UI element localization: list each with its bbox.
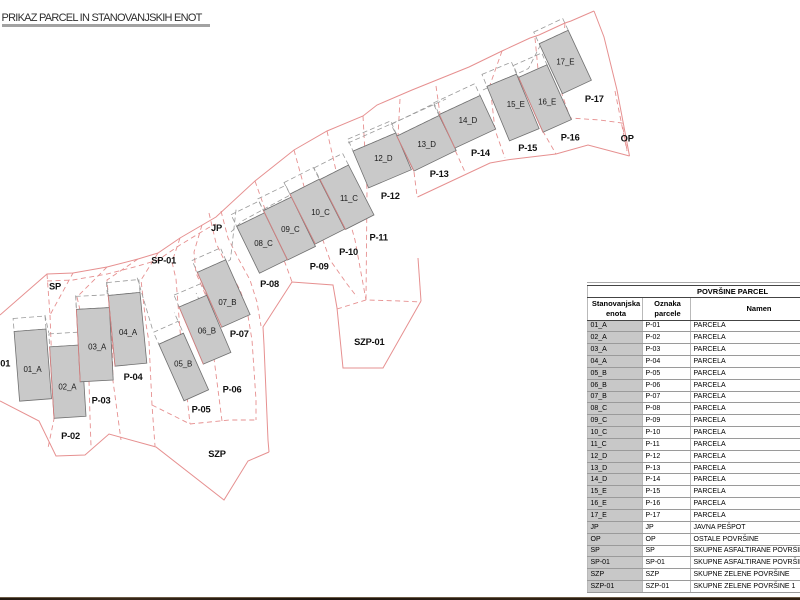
svg-text:P-17: P-17: [585, 94, 604, 104]
svg-text:P-08: P-08: [260, 279, 279, 289]
svg-text:05_B: 05_B: [174, 359, 192, 368]
svg-text:SP-01: SP-01: [151, 255, 176, 265]
svg-text:P-03: P-03: [92, 395, 111, 405]
svg-text:P-10: P-10: [339, 247, 358, 257]
svg-text:03_A: 03_A: [88, 343, 107, 352]
svg-text:P-09: P-09: [310, 262, 329, 272]
svg-text:P-15: P-15: [518, 143, 537, 153]
svg-text:17_E: 17_E: [556, 57, 574, 66]
svg-text:04_A: 04_A: [119, 328, 138, 337]
svg-text:SP: SP: [49, 282, 61, 292]
svg-text:15_E: 15_E: [507, 100, 525, 109]
svg-text:P-12: P-12: [381, 191, 400, 201]
svg-text:P-06: P-06: [223, 384, 242, 394]
svg-text:02_A: 02_A: [58, 382, 77, 391]
svg-text:JP: JP: [211, 223, 222, 233]
svg-text:13_D: 13_D: [417, 140, 436, 149]
svg-text:P-07: P-07: [230, 329, 249, 339]
svg-text:11_C: 11_C: [340, 194, 358, 203]
svg-text:16_E: 16_E: [538, 98, 556, 107]
svg-text:06_B: 06_B: [198, 326, 216, 335]
svg-text:P-04: P-04: [124, 372, 144, 382]
svg-text:SZP: SZP: [208, 449, 225, 459]
svg-text:09_C: 09_C: [281, 225, 300, 234]
svg-text:SZP-01: SZP-01: [354, 337, 384, 347]
svg-text:10_C: 10_C: [311, 208, 330, 217]
svg-text:OP: OP: [621, 133, 634, 143]
svg-text:P-05: P-05: [192, 405, 211, 415]
svg-text:01_A: 01_A: [23, 365, 42, 374]
svg-text:P-13: P-13: [430, 169, 449, 179]
svg-text:08_C: 08_C: [254, 239, 273, 248]
svg-text:12_D: 12_D: [374, 154, 393, 163]
svg-text:14_D: 14_D: [459, 116, 478, 125]
svg-text:01: 01: [0, 359, 10, 369]
svg-text:P-14: P-14: [471, 148, 491, 158]
svg-text:P-11: P-11: [370, 232, 388, 242]
svg-text:07_B: 07_B: [218, 298, 236, 307]
svg-text:P-16: P-16: [561, 133, 580, 143]
svg-text:P-02: P-02: [61, 431, 80, 441]
